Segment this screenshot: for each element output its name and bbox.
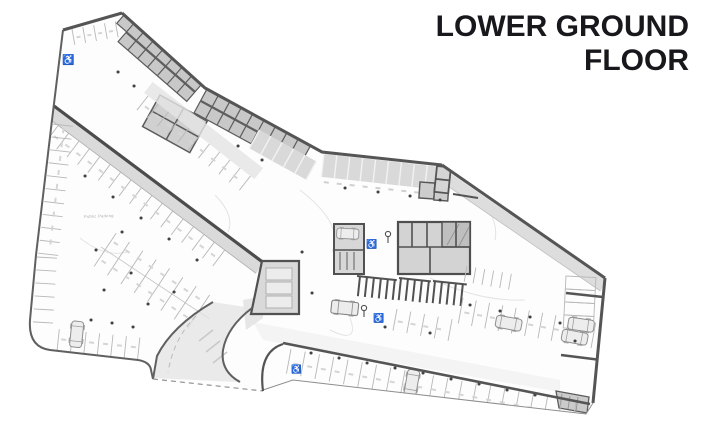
- zone-label-public-parking: Public Parking: [84, 213, 114, 219]
- accessible-icon: ♿: [366, 238, 377, 249]
- accessible-icon: ♿: [62, 53, 74, 66]
- page-title: LOWER GROUND FLOOR: [436, 10, 689, 78]
- accessible-icon: ♿: [291, 364, 302, 374]
- page-title-line1: LOWER GROUND: [436, 10, 689, 44]
- page-title-line2: FLOOR: [436, 44, 689, 78]
- car-icon: [336, 227, 359, 241]
- core-stairs-lifts: [334, 222, 470, 274]
- screenshot-root: ♿ ♿ ♿: [0, 0, 705, 422]
- accessible-icon: ♿: [373, 312, 384, 323]
- car-share-van-icon: [330, 299, 359, 318]
- car-icon: [68, 321, 85, 348]
